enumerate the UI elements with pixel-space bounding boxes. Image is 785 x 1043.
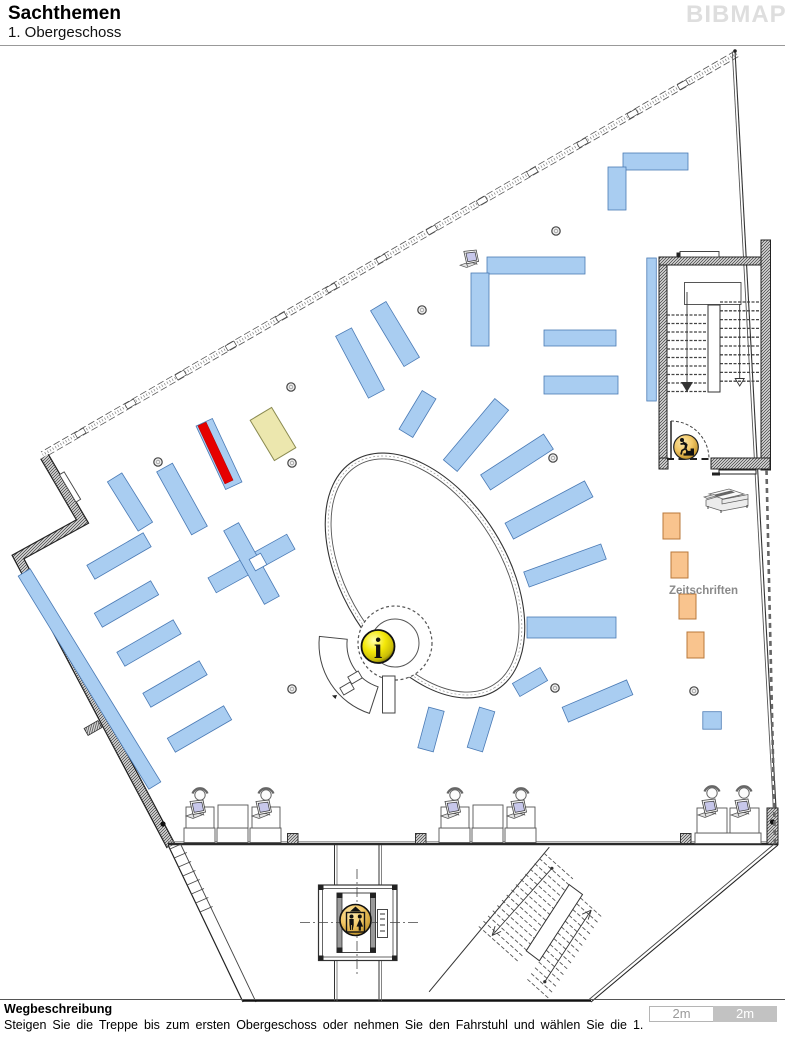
svg-text:Zeitschriften: Zeitschriften xyxy=(669,585,738,597)
svg-text:i: i xyxy=(374,632,382,665)
